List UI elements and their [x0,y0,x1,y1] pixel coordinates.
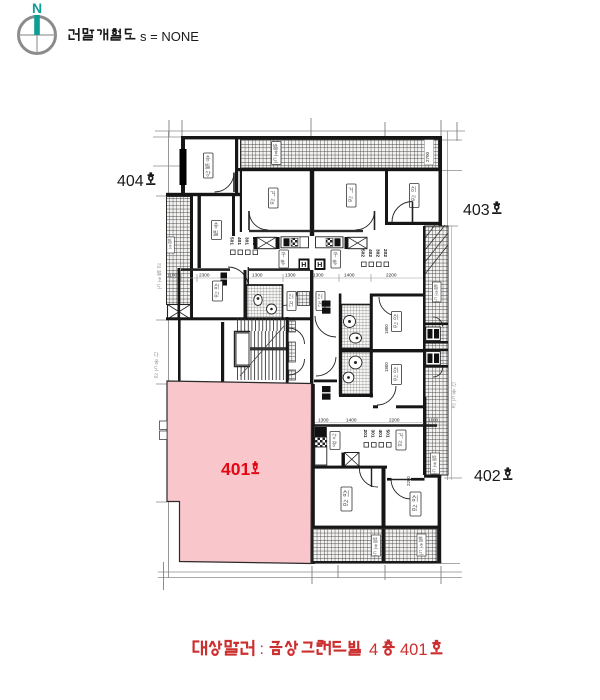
svg-text:401: 401 [400,641,428,659]
svg-text:2200: 2200 [406,476,411,486]
svg-text:1300: 1300 [318,418,329,423]
svg-text:1300: 1300 [252,273,263,278]
svg-text:N: N [32,0,42,16]
svg-text:1100: 1100 [167,273,177,278]
svg-text:2700: 2700 [425,151,430,162]
svg-text:402: 402 [367,249,373,257]
svg-text:502: 502 [360,249,366,257]
svg-text::: : [260,641,264,658]
svg-text:501: 501 [385,430,391,438]
svg-text:404: 404 [117,173,144,190]
svg-text:301: 301 [244,237,250,245]
svg-text:1800: 1800 [384,362,389,372]
svg-text:401: 401 [236,237,242,245]
svg-text:301: 301 [370,430,376,438]
svg-text:H: H [301,262,306,269]
svg-text:501: 501 [229,237,235,245]
svg-text:1400: 1400 [346,418,357,423]
svg-text:201: 201 [362,430,368,438]
svg-text:1300: 1300 [313,273,324,278]
svg-text:H: H [317,262,322,269]
svg-text:401: 401 [221,459,250,479]
svg-text:401: 401 [377,430,383,438]
svg-text:1400: 1400 [344,273,355,278]
svg-text:302: 302 [375,249,381,257]
svg-text:403: 403 [463,202,490,219]
svg-text:2200: 2200 [386,273,397,278]
svg-text:402: 402 [474,468,501,485]
svg-text:1800: 1800 [384,324,389,334]
svg-text:2300: 2300 [199,273,210,278]
svg-text:202: 202 [382,249,388,257]
svg-text:4: 4 [369,641,378,659]
svg-text:s = NONE: s = NONE [140,29,199,44]
svg-text:1300: 1300 [285,273,296,278]
svg-text:1100: 1100 [428,418,438,423]
svg-text:2200: 2200 [389,418,400,423]
